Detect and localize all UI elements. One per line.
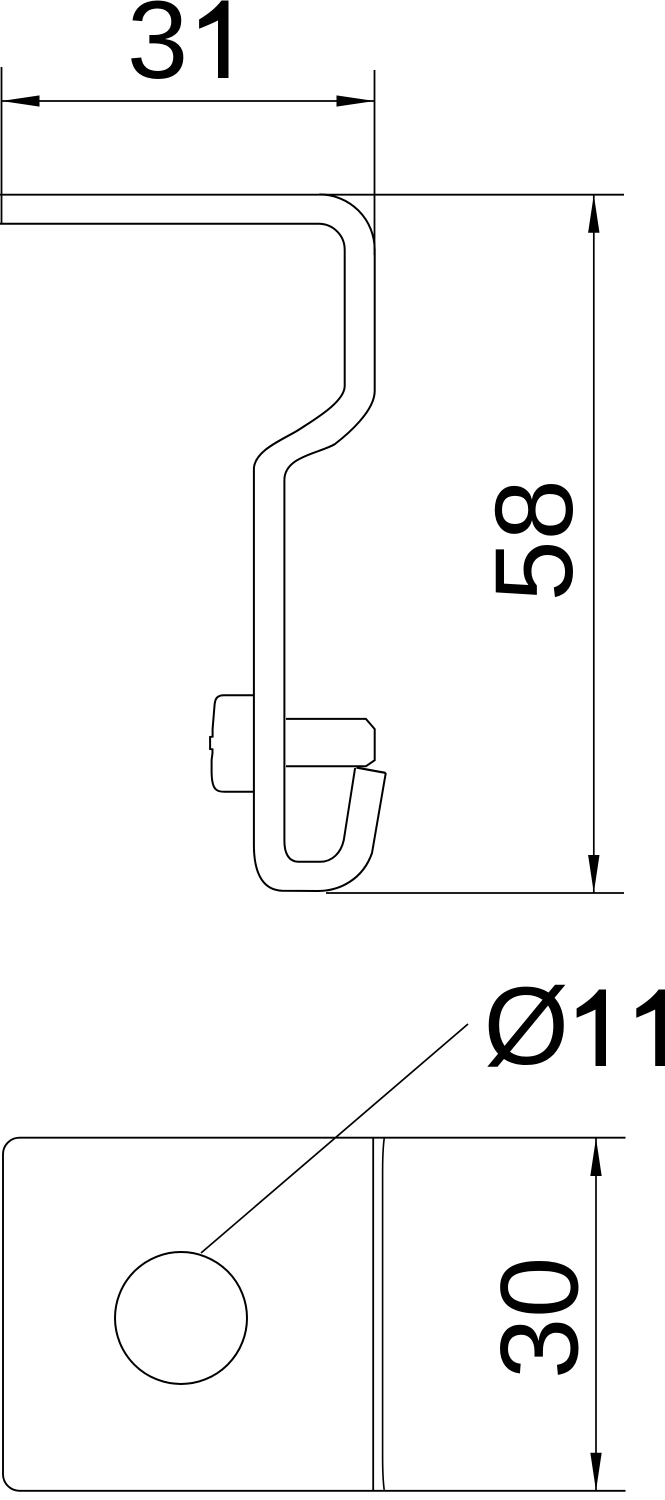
- svg-text:58: 58: [473, 479, 596, 601]
- svg-text:3: 3: [127, 0, 188, 102]
- svg-text:30: 30: [479, 1257, 602, 1379]
- svg-text:Ø: Ø: [484, 965, 570, 1088]
